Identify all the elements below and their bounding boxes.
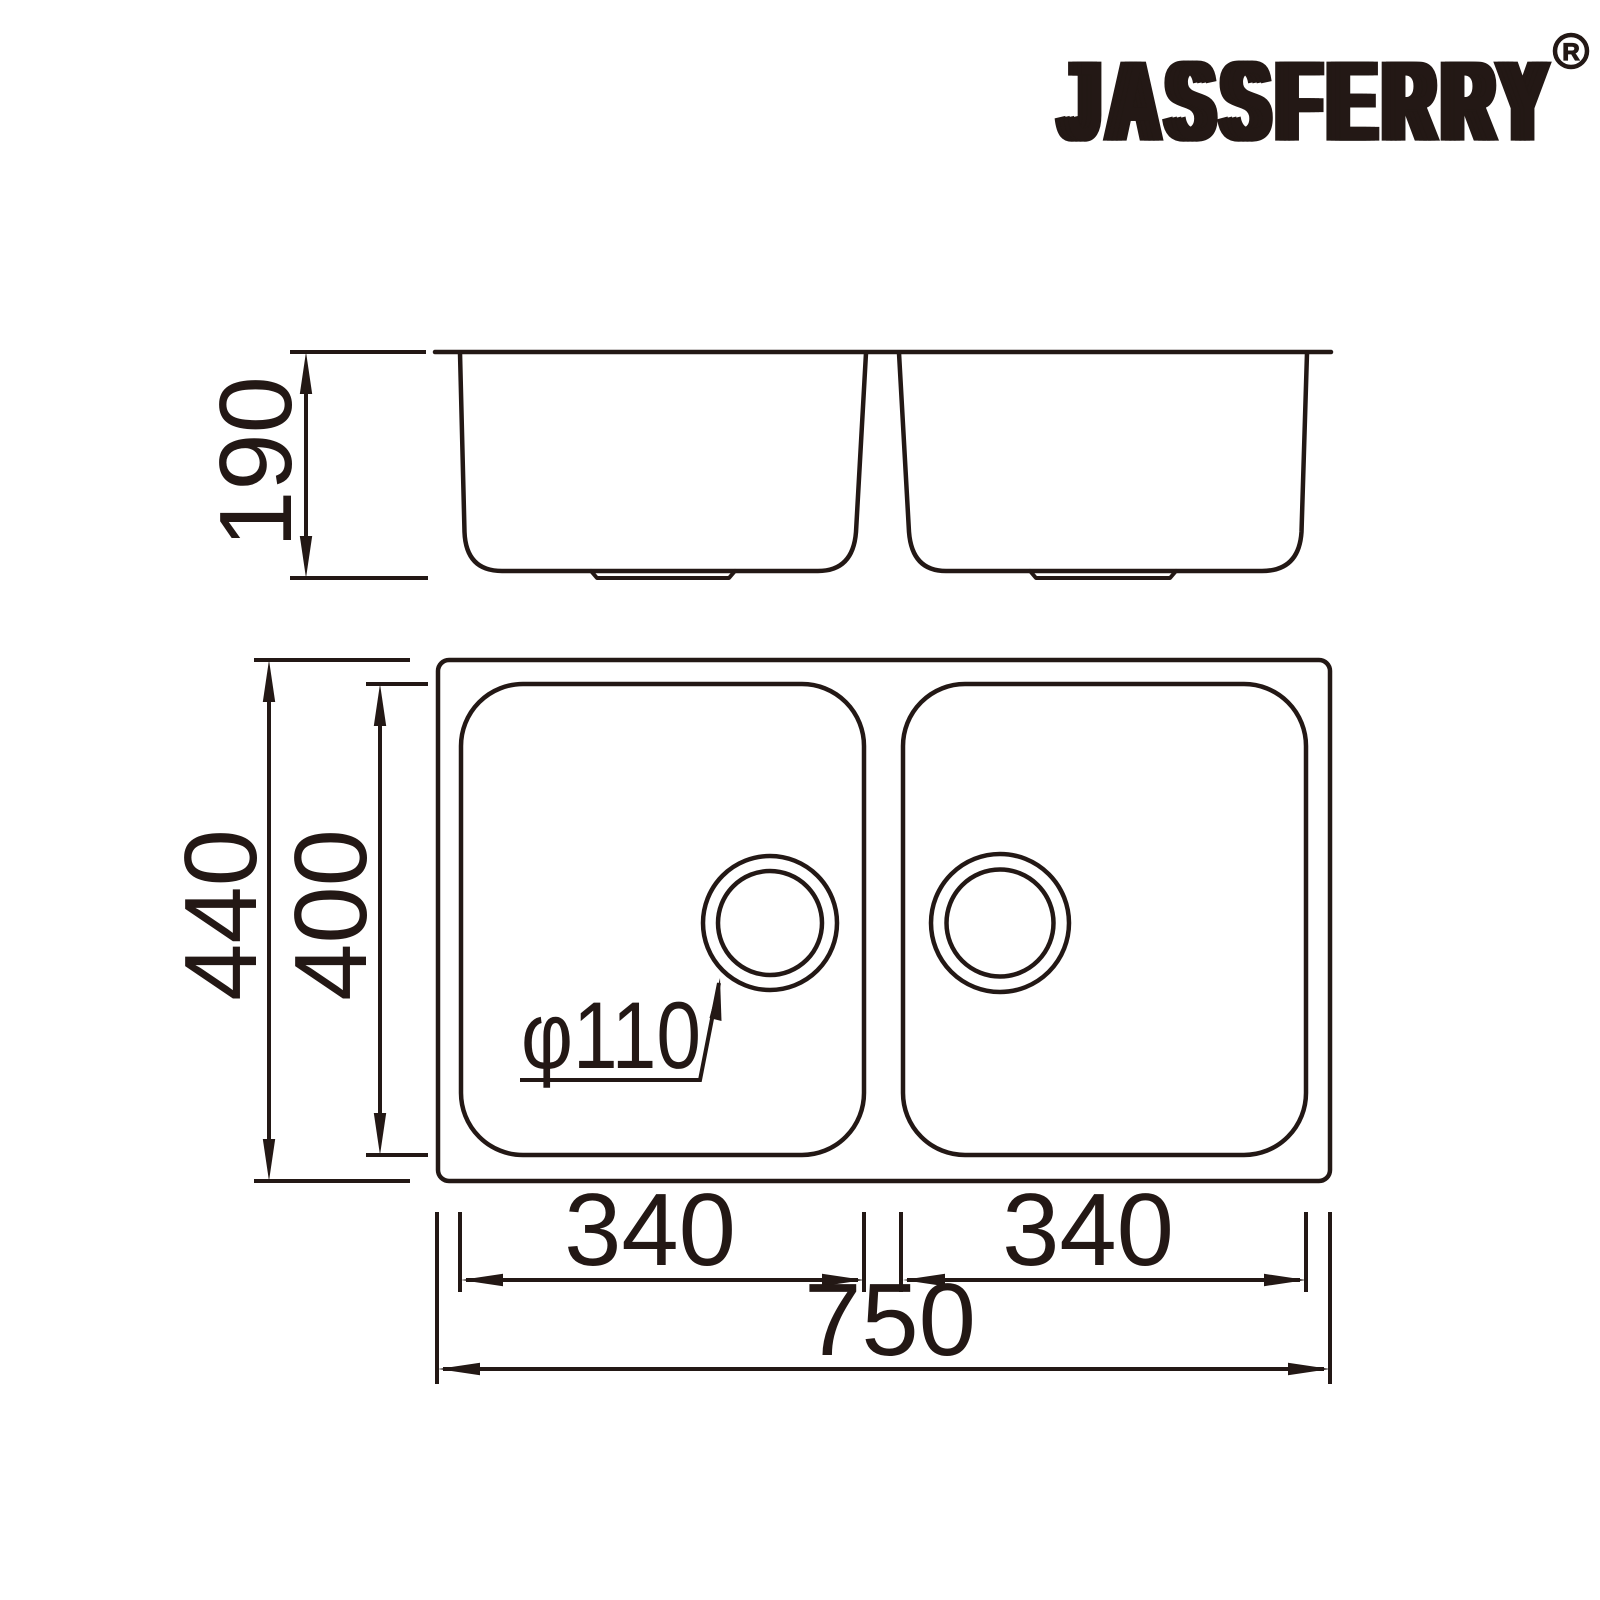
svg-text:φ110: φ110 <box>521 983 701 1089</box>
svg-text:R: R <box>1562 39 1579 66</box>
svg-text:190: 190 <box>198 376 313 548</box>
svg-text:340: 340 <box>1002 1172 1174 1287</box>
svg-text:340: 340 <box>564 1172 736 1287</box>
svg-text:JASSFERRY: JASSFERRY <box>1067 38 1561 164</box>
svg-text:440: 440 <box>163 829 278 1001</box>
svg-text:750: 750 <box>804 1262 976 1377</box>
svg-text:400: 400 <box>273 829 388 1001</box>
